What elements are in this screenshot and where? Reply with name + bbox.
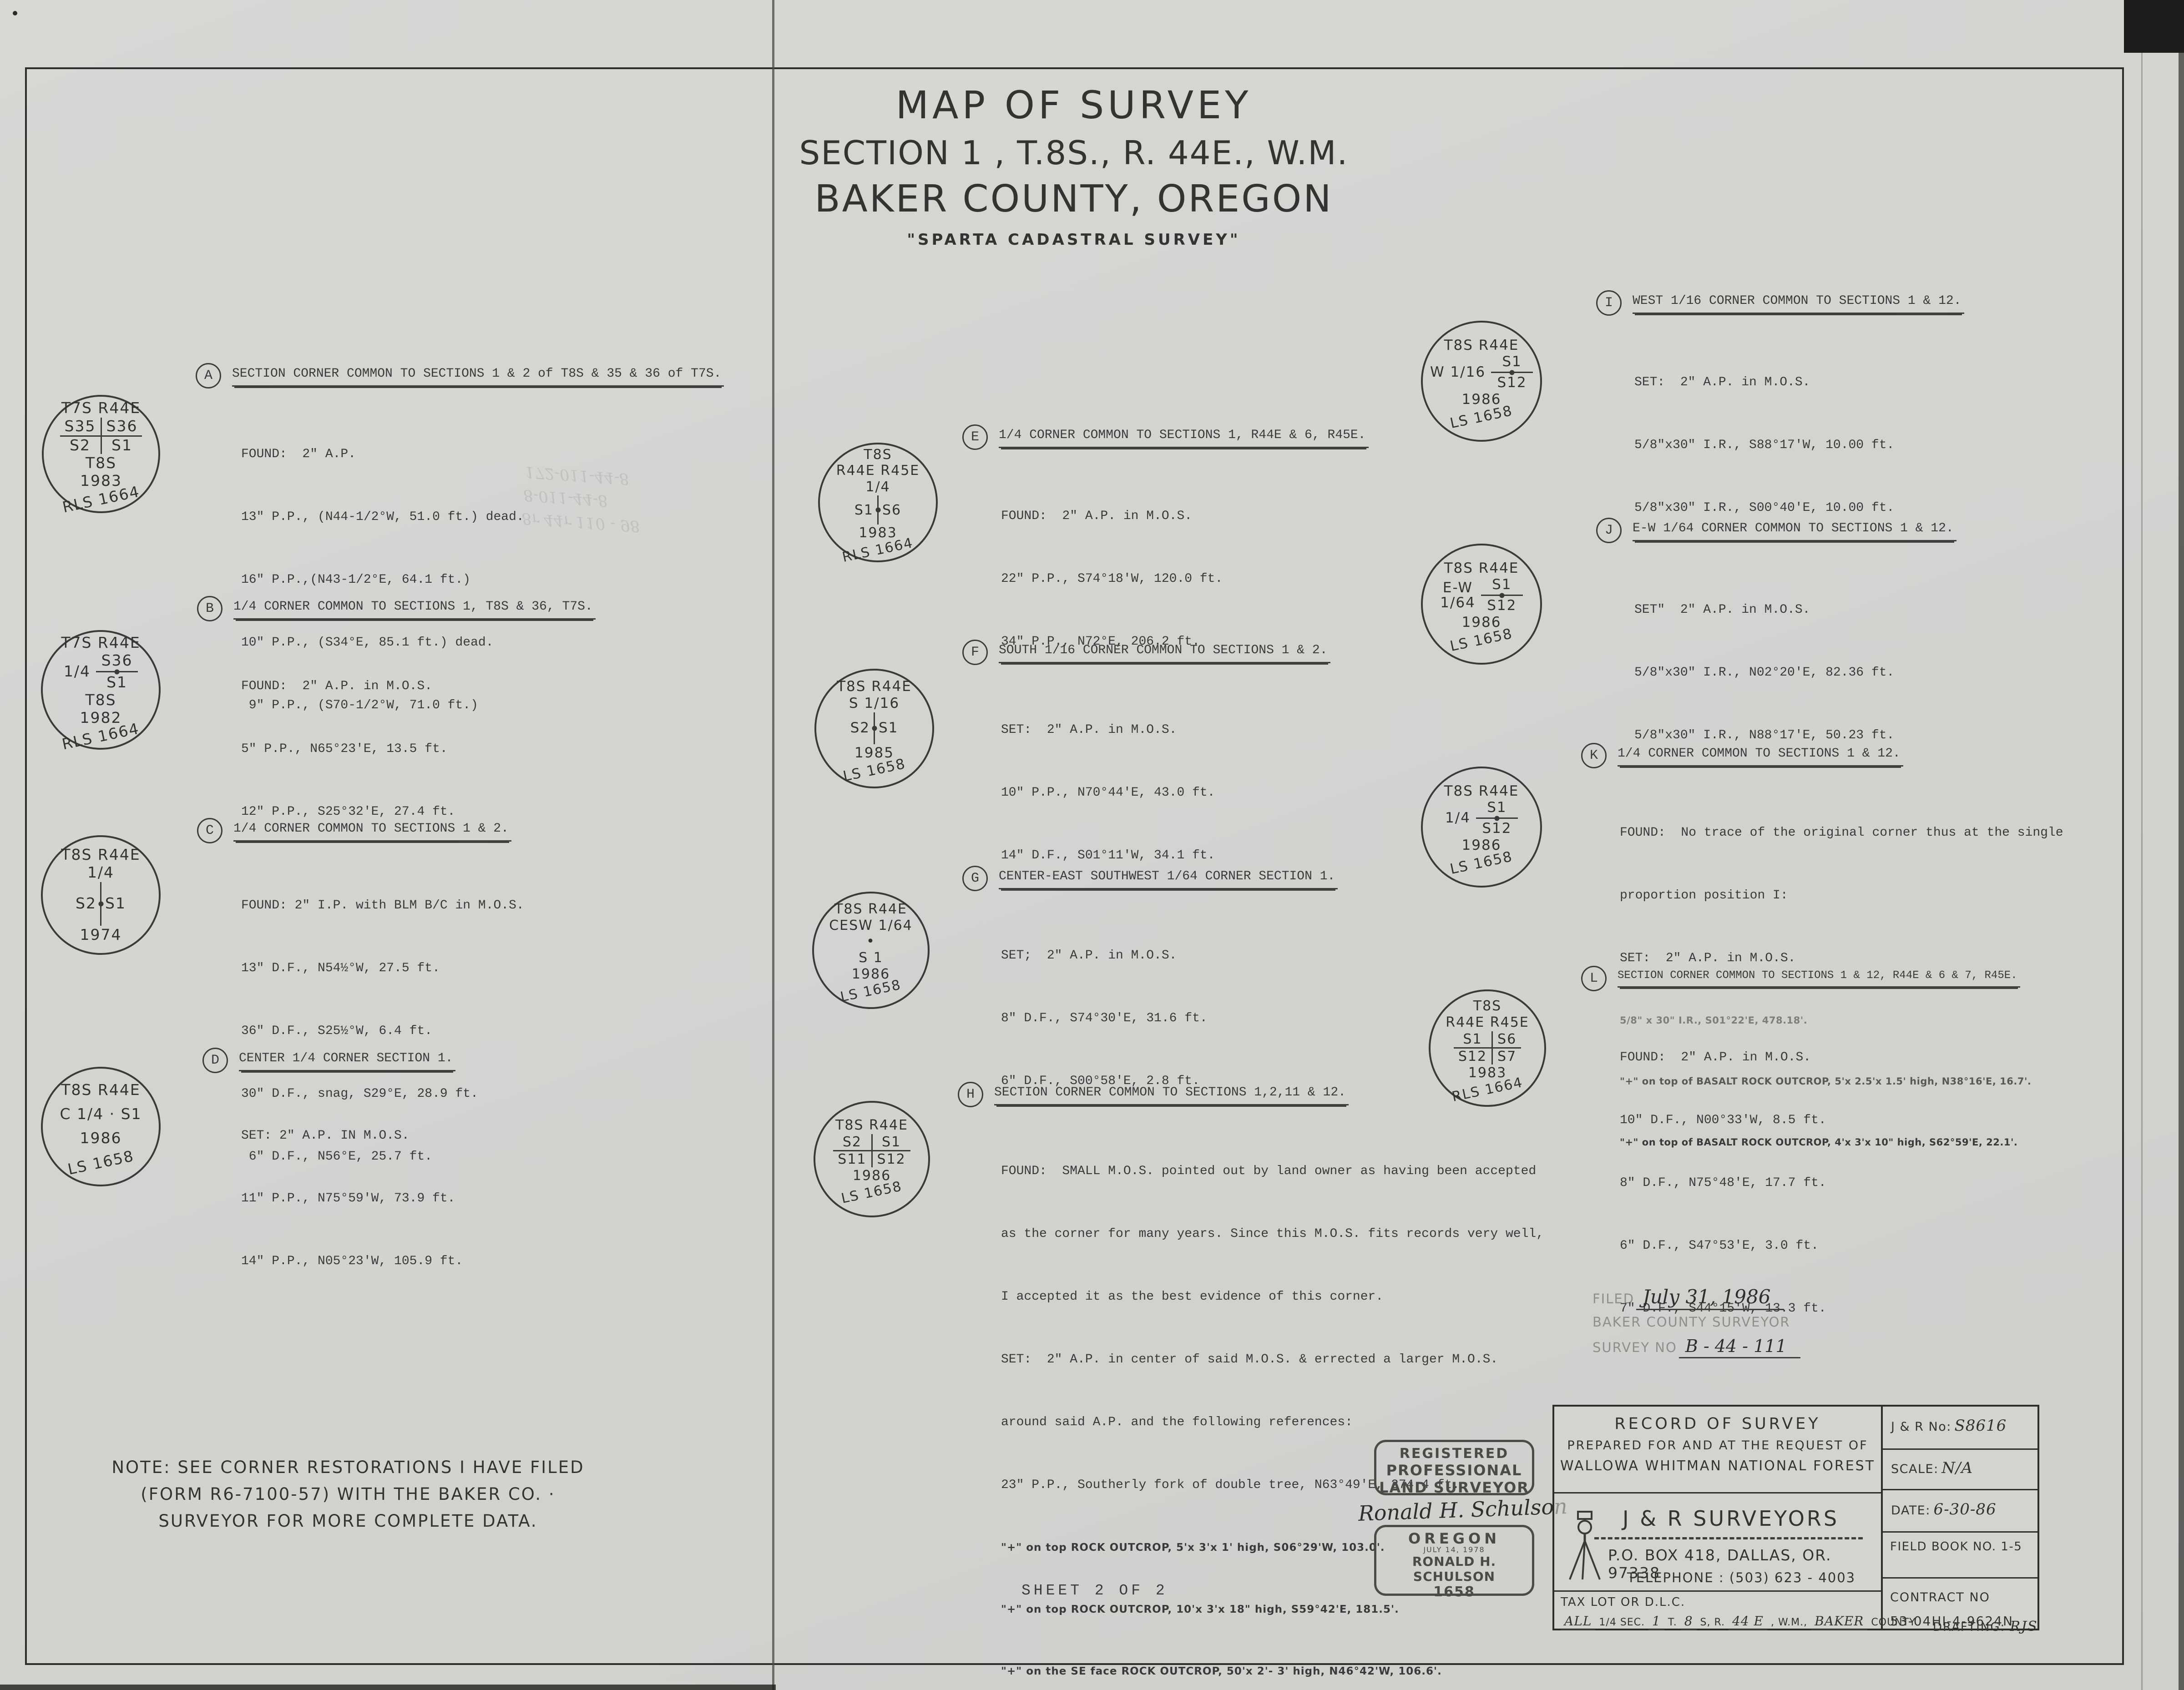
firm-phone: TELEPHONE : (503) 623 - 4003	[1627, 1570, 1855, 1585]
survey-no-label: SURVEY NO	[1592, 1340, 1677, 1355]
corner-f-tag: F	[962, 640, 988, 665]
scan-corner-mark	[2124, 0, 2184, 53]
filed-block: FILED July 31, 1986 BAKER COUNTY SURVEYO…	[1592, 1286, 2002, 1362]
fold-line-right	[2141, 0, 2143, 1690]
fold-line-center	[772, 0, 774, 1690]
title-line-4: "SPARTA CADASTRAL SURVEY"	[742, 231, 1406, 249]
section-cross: S35S36 S2S1	[60, 418, 142, 454]
jr-number-value: S8616	[1954, 1417, 2007, 1435]
corner-h-heading: SECTION CORNER COMMON TO SECTIONS 1,2,11…	[994, 1082, 1349, 1105]
corner-j-heading: E-W 1/64 CORNER COMMON TO SECTIONS 1 & 1…	[1633, 518, 1956, 541]
monument-cap-j: T8S R44E E-W 1/64 S1 S12 1986 LS 1658	[1421, 544, 1542, 665]
corner-e-heading: 1/4 CORNER COMMON TO SECTIONS 1, R44E & …	[999, 424, 1369, 448]
scan-edge-right	[2179, 0, 2184, 1690]
corner-note-a-header: A SECTION CORNER COMMON TO SECTIONS 1 & …	[196, 363, 724, 388]
quarter-fraction: 1/4 S36 S1	[64, 652, 138, 691]
monument-cap-g: T8S R44E CESW 1/64 • S 1 1986 LS 1658	[812, 892, 930, 1009]
corner-note-f-header: F SOUTH 1/16 CORNER COMMON TO SECTIONS 1…	[962, 640, 1330, 665]
scan-dot	[13, 11, 17, 15]
survey-sheet: MAP OF SURVEY SECTION 1 , T.8S., R. 44E.…	[0, 0, 2184, 1690]
transit-icon	[1564, 1509, 1605, 1582]
survey-no-value: B - 44 - 111	[1679, 1336, 1800, 1358]
corner-h-tag: H	[958, 1082, 983, 1107]
quarter-fraction: W 1/16 S1 S12	[1430, 354, 1533, 390]
corner-l-tag: L	[1581, 966, 1607, 991]
corner-note-l-header: L SECTION CORNER COMMON TO SECTIONS 1 & …	[1581, 966, 2020, 991]
corner-note-d-body: SET: 2" A.P. IN M.O.S. 11" P.P., N75°59'…	[241, 1084, 463, 1314]
corner-note-j-header: J E-W 1/64 CORNER COMMON TO SECTIONS 1 &…	[1596, 518, 1956, 543]
tax-lot-line: ALL 1/4 SEC. 1 T. 8 S, R. 44 E , W.M., B…	[1561, 1614, 1881, 1629]
monument-cap-e: T8S R44E R45E 1/4 S1 S6 1983 RLS 1664	[818, 443, 938, 562]
corner-note-d-header: D CENTER 1/4 CORNER SECTION 1.	[202, 1048, 455, 1073]
corner-g-tag: G	[962, 866, 988, 891]
corner-b-tag: B	[197, 596, 222, 621]
scale-value: N/A	[1941, 1459, 1973, 1477]
section-line: S1 S6	[854, 495, 901, 525]
firm-name: J & R SURVEYORS	[1623, 1506, 1839, 1531]
monument-cap-l: T8S R44E R45E S1S6 S12S7 1983 RLS 1664	[1429, 989, 1546, 1107]
monument-cap-a: T7S R44E S35S36 S2S1 T8S 1983 RLS 1664	[42, 395, 160, 513]
monument-cap-i: T8S R44E W 1/16 S1 S12 1986 LS 1658	[1421, 321, 1542, 442]
date-cell: DATE: 6-30-86	[1883, 1490, 2037, 1533]
jr-number-cell: J & R No: S8616	[1883, 1407, 2037, 1450]
corner-b-heading: 1/4 CORNER COMMON TO SECTIONS 1, T8S & 3…	[233, 596, 596, 620]
show-through-text: 8r 44r 110 - 98 8-011-44-8 172-011-44-8	[521, 460, 644, 538]
corner-f-heading: SOUTH 1/16 CORNER COMMON TO SECTIONS 1 &…	[999, 640, 1330, 663]
corner-g-heading: CENTER-EAST SOUTHWEST 1/64 CORNER SECTIO…	[999, 866, 1338, 889]
corner-note-h-header: H SECTION CORNER COMMON TO SECTIONS 1,2,…	[958, 1082, 1349, 1107]
surveyor-stamp-bottom: OREGON JULY 14, 1978 RONALD H. SCHULSON …	[1374, 1525, 1534, 1596]
monument-cap-f: T8S R44E S 1/16 S2 S1 1985 LS 1658	[814, 669, 934, 788]
monument-cap-d: T8S R44E C 1/4 · S1 1986 LS 1658	[41, 1067, 161, 1186]
corner-c-heading: 1/4 CORNER COMMON TO SECTIONS 1 & 2.	[233, 818, 511, 842]
corner-a-heading: SECTION CORNER COMMON TO SECTIONS 1 & 2 …	[232, 363, 724, 387]
monument-cap-h: T8S R44E S2S1 S11S12 1986 LS 1658	[814, 1101, 930, 1217]
corner-k-heading: 1/4 CORNER COMMON TO SECTIONS 1 & 12.	[1618, 743, 1903, 767]
corner-a-tag: A	[196, 363, 221, 388]
title-block: RECORD OF SURVEY PREPARED FOR AND AT THE…	[1552, 1405, 2039, 1630]
corner-note-h-body: FOUND: SMALL M.O.S. pointed out by land …	[1001, 1119, 1544, 1690]
title-line-3: BAKER COUNTY, OREGON	[742, 177, 1406, 221]
field-book-cell: FIELD BOOK NO. 1-5	[1883, 1533, 2037, 1579]
corner-note-c-header: C 1/4 CORNER COMMON TO SECTIONS 1 & 2.	[197, 818, 511, 843]
section-cross: S1S6 S12S7	[1454, 1031, 1521, 1064]
sheet-label: SHEET 2 OF 2	[1021, 1582, 1168, 1599]
corner-k-tag: K	[1581, 743, 1607, 768]
monument-cap-c: T8S R44E 1/4 S2 S1 1974	[41, 835, 161, 955]
section-line: S2 S1	[850, 712, 899, 744]
corner-note-e-header: E 1/4 CORNER COMMON TO SECTIONS 1, R44E …	[962, 424, 1369, 450]
scan-edge-bottom	[0, 1685, 776, 1690]
corner-i-tag: I	[1596, 290, 1622, 316]
corner-c-tag: C	[197, 818, 222, 843]
filed-date: July 31, 1986	[1636, 1286, 1784, 1310]
title-line-2: SECTION 1 , T.8S., R. 44E., W.M.	[742, 134, 1406, 172]
quarter-fraction: E-W 1/64 S1 S12	[1440, 577, 1523, 613]
tax-lot-label: TAX LOT OR D.L.C.	[1561, 1595, 1881, 1609]
tax-lot-cell: TAX LOT OR D.L.C. ALL 1/4 SEC. 1 T. 8 S,…	[1554, 1592, 1881, 1629]
surveyor-stamp-top: REGISTERED PROFESSIONAL LAND SURVEYOR	[1374, 1440, 1534, 1495]
record-of-survey-cell: RECORD OF SURVEY PREPARED FOR AND AT THE…	[1554, 1407, 1881, 1493]
drafting-label: DRAFTING: RJS	[1933, 1619, 2038, 1635]
survey-title: MAP OF SURVEY SECTION 1 , T.8S., R. 44E.…	[742, 83, 1406, 249]
corner-d-tag: D	[202, 1048, 228, 1073]
firm-cell: J & R SURVEYORS P.O. BOX 418, DALLAS, OR…	[1554, 1493, 1881, 1592]
corner-note-g-header: G CENTER-EAST SOUTHWEST 1/64 CORNER SECT…	[962, 866, 1338, 891]
scale-cell: SCALE: N/A	[1883, 1450, 2037, 1490]
section-cross: S2S1 S11S12	[833, 1134, 910, 1167]
corner-i-heading: WEST 1/16 CORNER COMMON TO SECTIONS 1 & …	[1633, 290, 1964, 314]
corner-l-heading: SECTION CORNER COMMON TO SECTIONS 1 & 12…	[1618, 966, 2020, 988]
corner-e-tag: E	[962, 424, 988, 450]
note-box: NOTE: SEE CORNER RESTORATIONS I HAVE FIL…	[89, 1454, 607, 1535]
corner-note-b-header: B 1/4 CORNER COMMON TO SECTIONS 1, T8S &…	[197, 596, 596, 621]
quarter-fraction: 1/4 S1 S12	[1445, 800, 1518, 836]
filed-label: FILED	[1592, 1291, 1634, 1307]
date-value: 6-30-86	[1933, 1500, 1996, 1518]
title-line-1: MAP OF SURVEY	[742, 83, 1406, 127]
filed-county: BAKER COUNTY SURVEYOR	[1592, 1314, 2002, 1330]
corner-note-i-header: I WEST 1/16 CORNER COMMON TO SECTIONS 1 …	[1596, 290, 1964, 316]
drafting-initials: RJS	[2010, 1619, 2038, 1635]
section-line: S2 S1	[76, 882, 126, 926]
corner-d-heading: CENTER 1/4 CORNER SECTION 1.	[239, 1048, 455, 1071]
monument-cap-b: T7S R44E 1/4 S36 S1 T8S 1982 RLS 1664	[41, 630, 161, 750]
firm-underline	[1594, 1537, 1863, 1539]
corner-j-tag: J	[1596, 518, 1622, 543]
corner-note-k-header: K 1/4 CORNER COMMON TO SECTIONS 1 & 12.	[1581, 743, 1903, 768]
monument-cap-k: T8S R44E 1/4 S1 S12 1986 LS 1658	[1421, 767, 1542, 888]
